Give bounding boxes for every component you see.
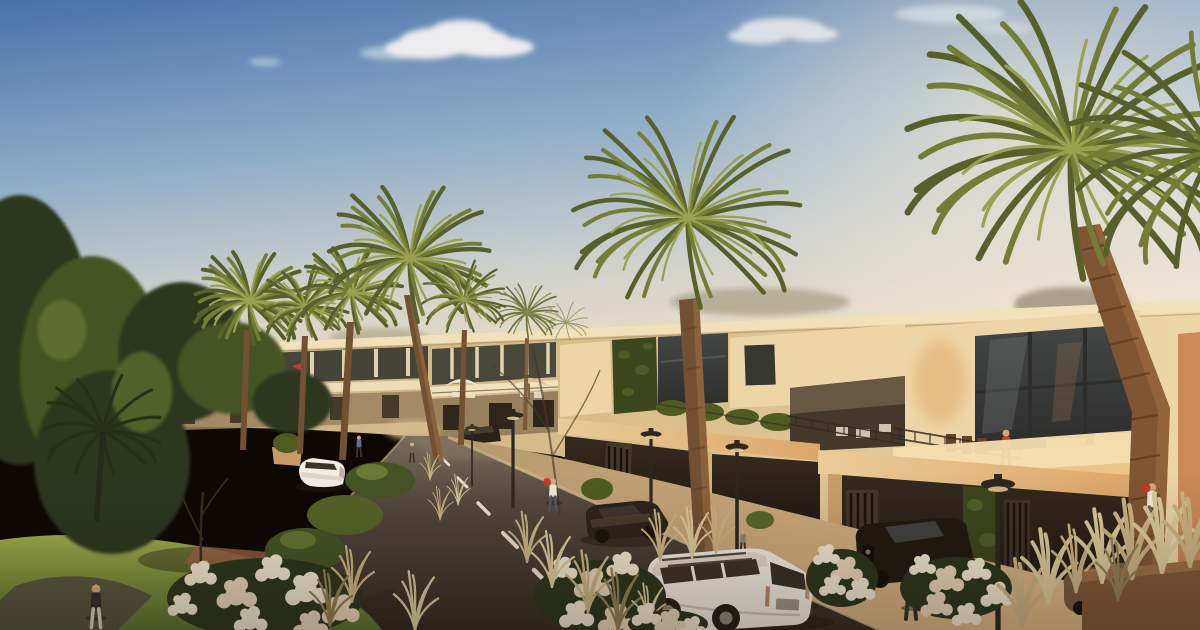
townhouse-street-render [0, 0, 1200, 630]
scene-canvas [0, 0, 1200, 630]
bottom-vignette [0, 0, 1200, 630]
